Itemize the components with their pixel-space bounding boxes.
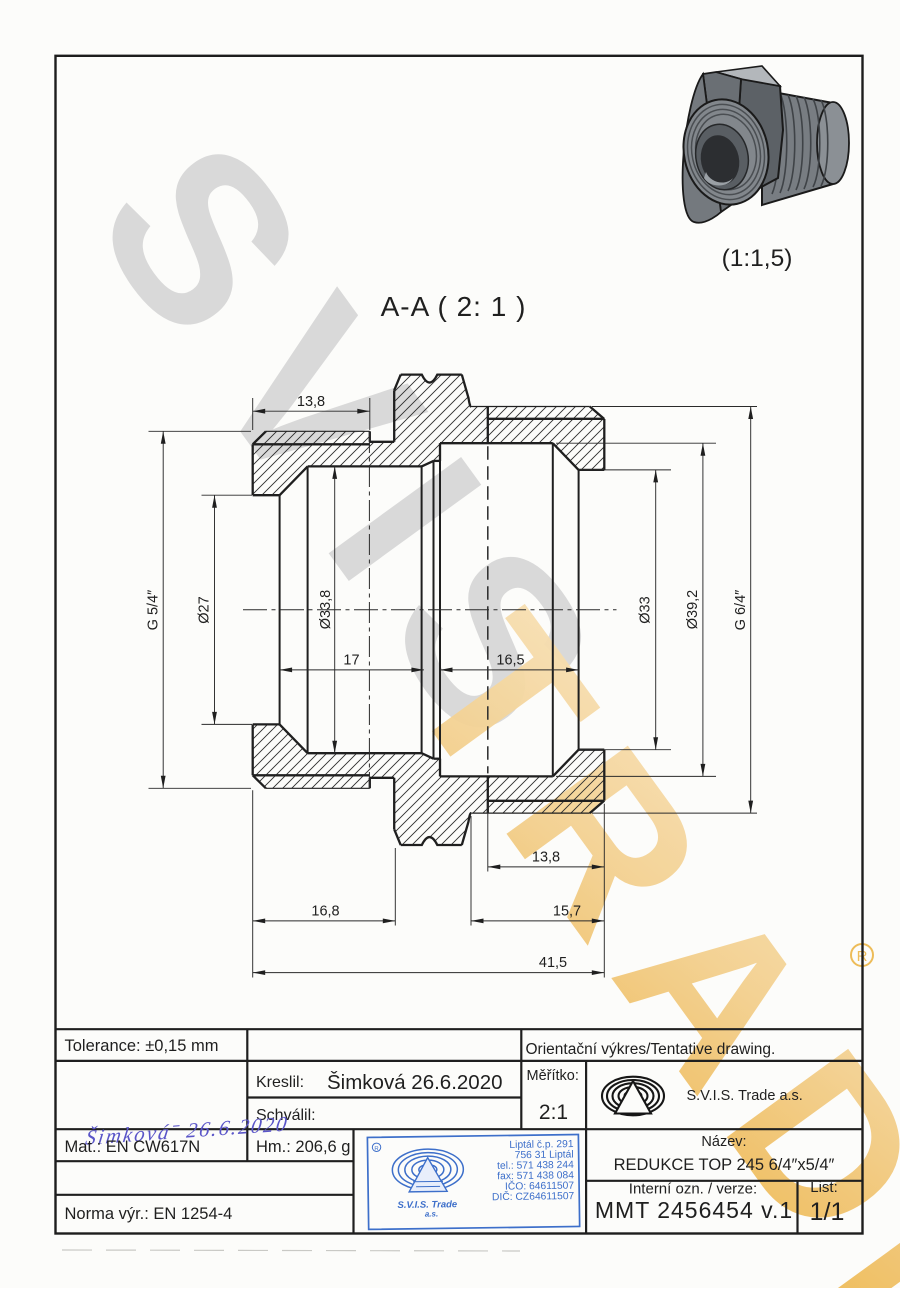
svg-text:Název:: Název: xyxy=(701,1134,746,1150)
svg-text:13,8: 13,8 xyxy=(297,394,325,410)
svg-text:REDUKCE TOP 245 6/4″x5/4″: REDUKCE TOP 245 6/4″x5/4″ xyxy=(614,1156,835,1174)
svg-text:a.s.: a.s. xyxy=(425,1209,438,1218)
svg-text:17: 17 xyxy=(343,652,359,668)
svg-text:16,8: 16,8 xyxy=(311,903,339,919)
svg-text:16,5: 16,5 xyxy=(496,652,524,668)
svg-text:1/1: 1/1 xyxy=(810,1198,845,1226)
svg-text:G 6/4″: G 6/4″ xyxy=(733,590,749,631)
svg-text:Ø27: Ø27 xyxy=(197,596,213,623)
svg-text:S.V.I.S. Trade a.s.: S.V.I.S. Trade a.s. xyxy=(687,1088,803,1104)
svg-text:15,7: 15,7 xyxy=(553,903,581,919)
svg-text:Interní ozn. / verze:: Interní ozn. / verze: xyxy=(629,1181,757,1198)
svg-text:Šimková 26.6.2020: Šimková 26.6.2020 xyxy=(327,1071,503,1094)
svg-text:DIČ: CZ64611507: DIČ: CZ64611507 xyxy=(492,1189,575,1203)
svg-text:2:1: 2:1 xyxy=(539,1101,568,1124)
svg-text:Norma výr.: EN 1254-4: Norma výr.: EN 1254-4 xyxy=(65,1205,233,1223)
svg-text:41,5: 41,5 xyxy=(539,955,567,971)
svg-text:Ø33,8: Ø33,8 xyxy=(318,590,334,630)
svg-text:Tolerance: ±0,15 mm: Tolerance: ±0,15 mm xyxy=(65,1037,219,1055)
svg-text:Hm.: 206,6 g: Hm.: 206,6 g xyxy=(256,1138,350,1156)
svg-text:A-A ( 2: 1 ): A-A ( 2: 1 ) xyxy=(381,291,527,322)
svg-text:Orientační výkres/Tentative dr: Orientační výkres/Tentative drawing. xyxy=(526,1041,776,1058)
svg-text:Ø39,2: Ø39,2 xyxy=(685,590,701,630)
svg-text:Mat.: EN CW617N: Mat.: EN CW617N xyxy=(65,1138,201,1156)
svg-text:Ø33: Ø33 xyxy=(638,596,654,623)
svg-text:List:: List: xyxy=(810,1179,838,1196)
svg-text:Měřítko:: Měřítko: xyxy=(527,1068,579,1084)
svg-text:(1:1,5): (1:1,5) xyxy=(722,245,793,272)
svg-text:MMT 2456454 v.1: MMT 2456454 v.1 xyxy=(595,1197,793,1223)
svg-text:13,8: 13,8 xyxy=(532,849,560,865)
svg-text:G 5/4″: G 5/4″ xyxy=(146,590,162,631)
svg-text:R: R xyxy=(374,1146,379,1152)
svg-text:Kreslil:: Kreslil: xyxy=(256,1074,304,1091)
